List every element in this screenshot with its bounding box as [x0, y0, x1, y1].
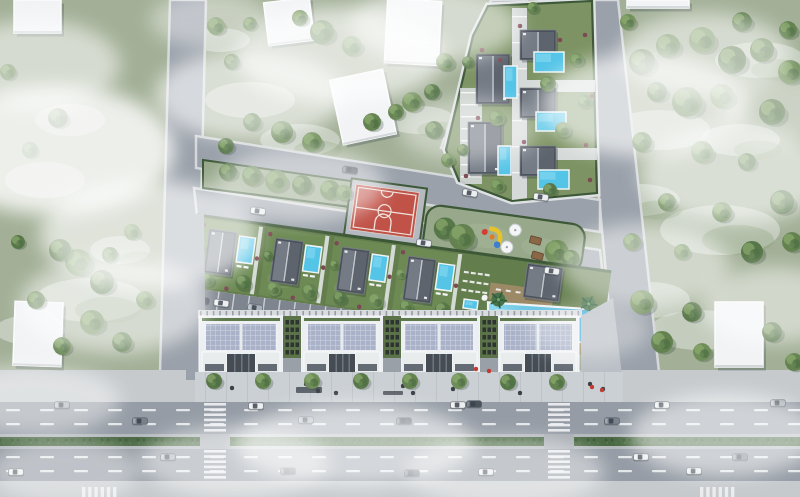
building: [627, 0, 692, 12]
villa-roof: [269, 238, 305, 288]
villa-roof: [402, 256, 438, 306]
villa-roof: [336, 247, 372, 297]
commercial-block: [301, 316, 383, 377]
car: [466, 401, 482, 409]
villa-pool: [303, 245, 322, 273]
site-plan-svg: [0, 0, 800, 497]
red-street-furniture: [474, 367, 478, 371]
car: [132, 418, 148, 426]
car: [450, 402, 466, 410]
shrub: [464, 174, 469, 179]
villa-pool: [435, 263, 454, 291]
cloud: [215, 147, 385, 223]
red-street-furniture: [590, 385, 594, 389]
shrub: [558, 38, 563, 43]
shrub: [583, 33, 588, 38]
courtyard: [383, 316, 401, 376]
courtyard: [480, 316, 498, 376]
courtyard: [283, 316, 301, 376]
car: [604, 418, 620, 426]
cloud: [400, 98, 540, 162]
villa-pool: [369, 254, 388, 282]
commercial-block: [199, 316, 283, 377]
bench-shelter: [383, 391, 403, 395]
roof-villa-plot: [258, 228, 330, 304]
villa-pool: [463, 299, 478, 310]
red-street-furniture: [600, 388, 604, 392]
pedestrian: [518, 391, 522, 395]
pedestrian: [334, 391, 338, 395]
pedestrian: [230, 386, 234, 390]
aerial-render: [0, 0, 800, 497]
villa-pool: [504, 66, 517, 98]
red-street-furniture: [487, 369, 491, 373]
car: [248, 403, 264, 411]
villa-pool: [534, 52, 564, 72]
pedestrian: [411, 391, 415, 395]
shrub: [498, 58, 503, 63]
roof-villa-plot: [324, 237, 396, 313]
cloud: [140, 426, 330, 497]
commercial-block: [398, 316, 480, 377]
cloud: [20, 257, 210, 353]
cloud: [530, 302, 650, 358]
shrub: [588, 178, 593, 183]
